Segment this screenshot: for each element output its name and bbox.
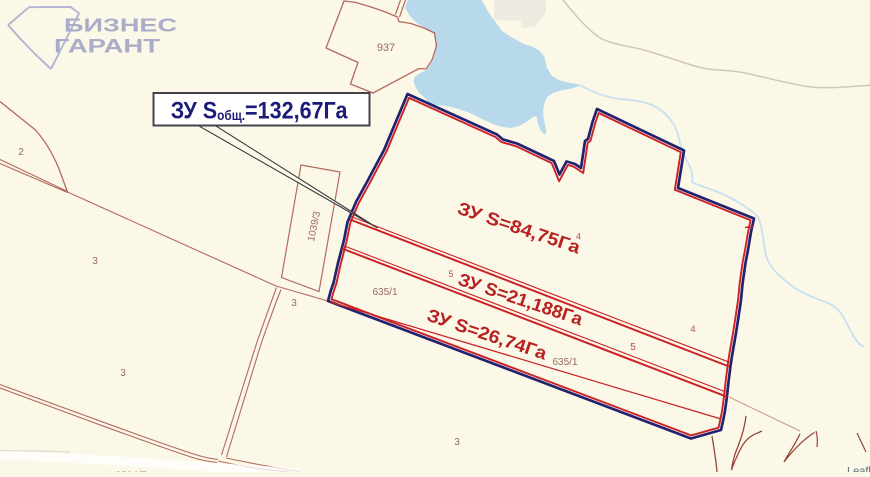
svg-text:БИЗНЕС: БИЗНЕС [64, 15, 177, 36]
svg-text:2: 2 [18, 147, 24, 158]
svg-text:4: 4 [690, 324, 695, 334]
svg-text:3: 3 [92, 256, 98, 267]
svg-text:3: 3 [120, 368, 126, 379]
svg-text:635/1: 635/1 [372, 287, 397, 298]
svg-text:635/1: 635/1 [552, 357, 577, 368]
svg-text:ГАРАНТ: ГАРАНТ [54, 35, 160, 57]
svg-text:3: 3 [291, 298, 297, 309]
svg-text:Leaflet: Leaflet [847, 466, 870, 473]
svg-text:3: 3 [454, 437, 460, 448]
svg-text:5: 5 [630, 342, 636, 353]
svg-text:937: 937 [377, 42, 395, 54]
svg-text:ЗУ Sобщ.=132,67Га: ЗУ Sобщ.=132,67Га [171, 96, 348, 124]
svg-text:5: 5 [448, 269, 453, 279]
svg-text:4: 4 [576, 232, 581, 242]
